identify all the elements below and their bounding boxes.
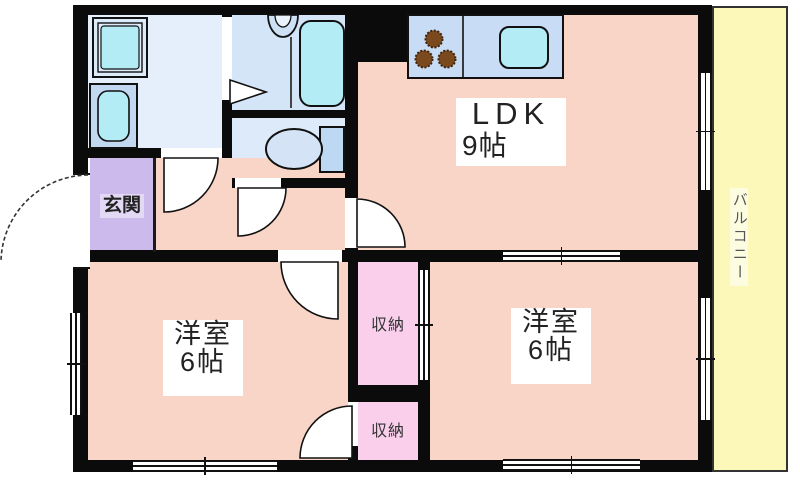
western-room-left-label: 洋室 6帖 [163,320,243,396]
western-room-left-size: 6帖 [163,348,243,376]
toilet-tank-icon [320,127,344,172]
stove-burner-3-icon [439,51,456,68]
ldk-size: 9帖 [456,131,566,160]
front-door-swing-arc [1,175,88,261]
western-room-right-name: 洋室 [511,308,591,336]
balcony-label: バルコニー [730,188,748,286]
ldk-label: LDK 9帖 [456,98,566,166]
washing-machine-tub [101,26,139,69]
bath-door-arrow-icon [230,80,266,104]
ldk-door-swing [357,199,405,247]
ldk-name: LDK [456,98,566,131]
closet-lower-label: 収納 [362,424,414,441]
entrance-label: 玄関 [100,194,144,218]
toilet-bowl-icon [266,129,322,169]
closet-upper-label: 収納 [362,318,414,335]
toilet-door-swing [238,188,286,236]
western-room-right-label: 洋室 6帖 [511,308,591,384]
kitchen-sink-icon [500,27,548,68]
western-room-left-name: 洋室 [163,320,243,348]
western-room-right-size: 6帖 [511,336,591,364]
bedroom-left-door-swing [281,262,338,319]
bathtub-icon [300,21,344,106]
washroom-door-swing [164,158,218,212]
wash-basin-icon [98,91,129,141]
stove-burner-1-icon [426,31,443,48]
closet-lower-door-swing [300,406,352,458]
floor-plan: LDK 9帖 洋室 6帖 洋室 6帖 玄関 収納 収納 バルコニー [0,0,800,483]
fixtures-and-doors-layer [0,0,800,483]
stove-burner-2-icon [416,51,433,68]
